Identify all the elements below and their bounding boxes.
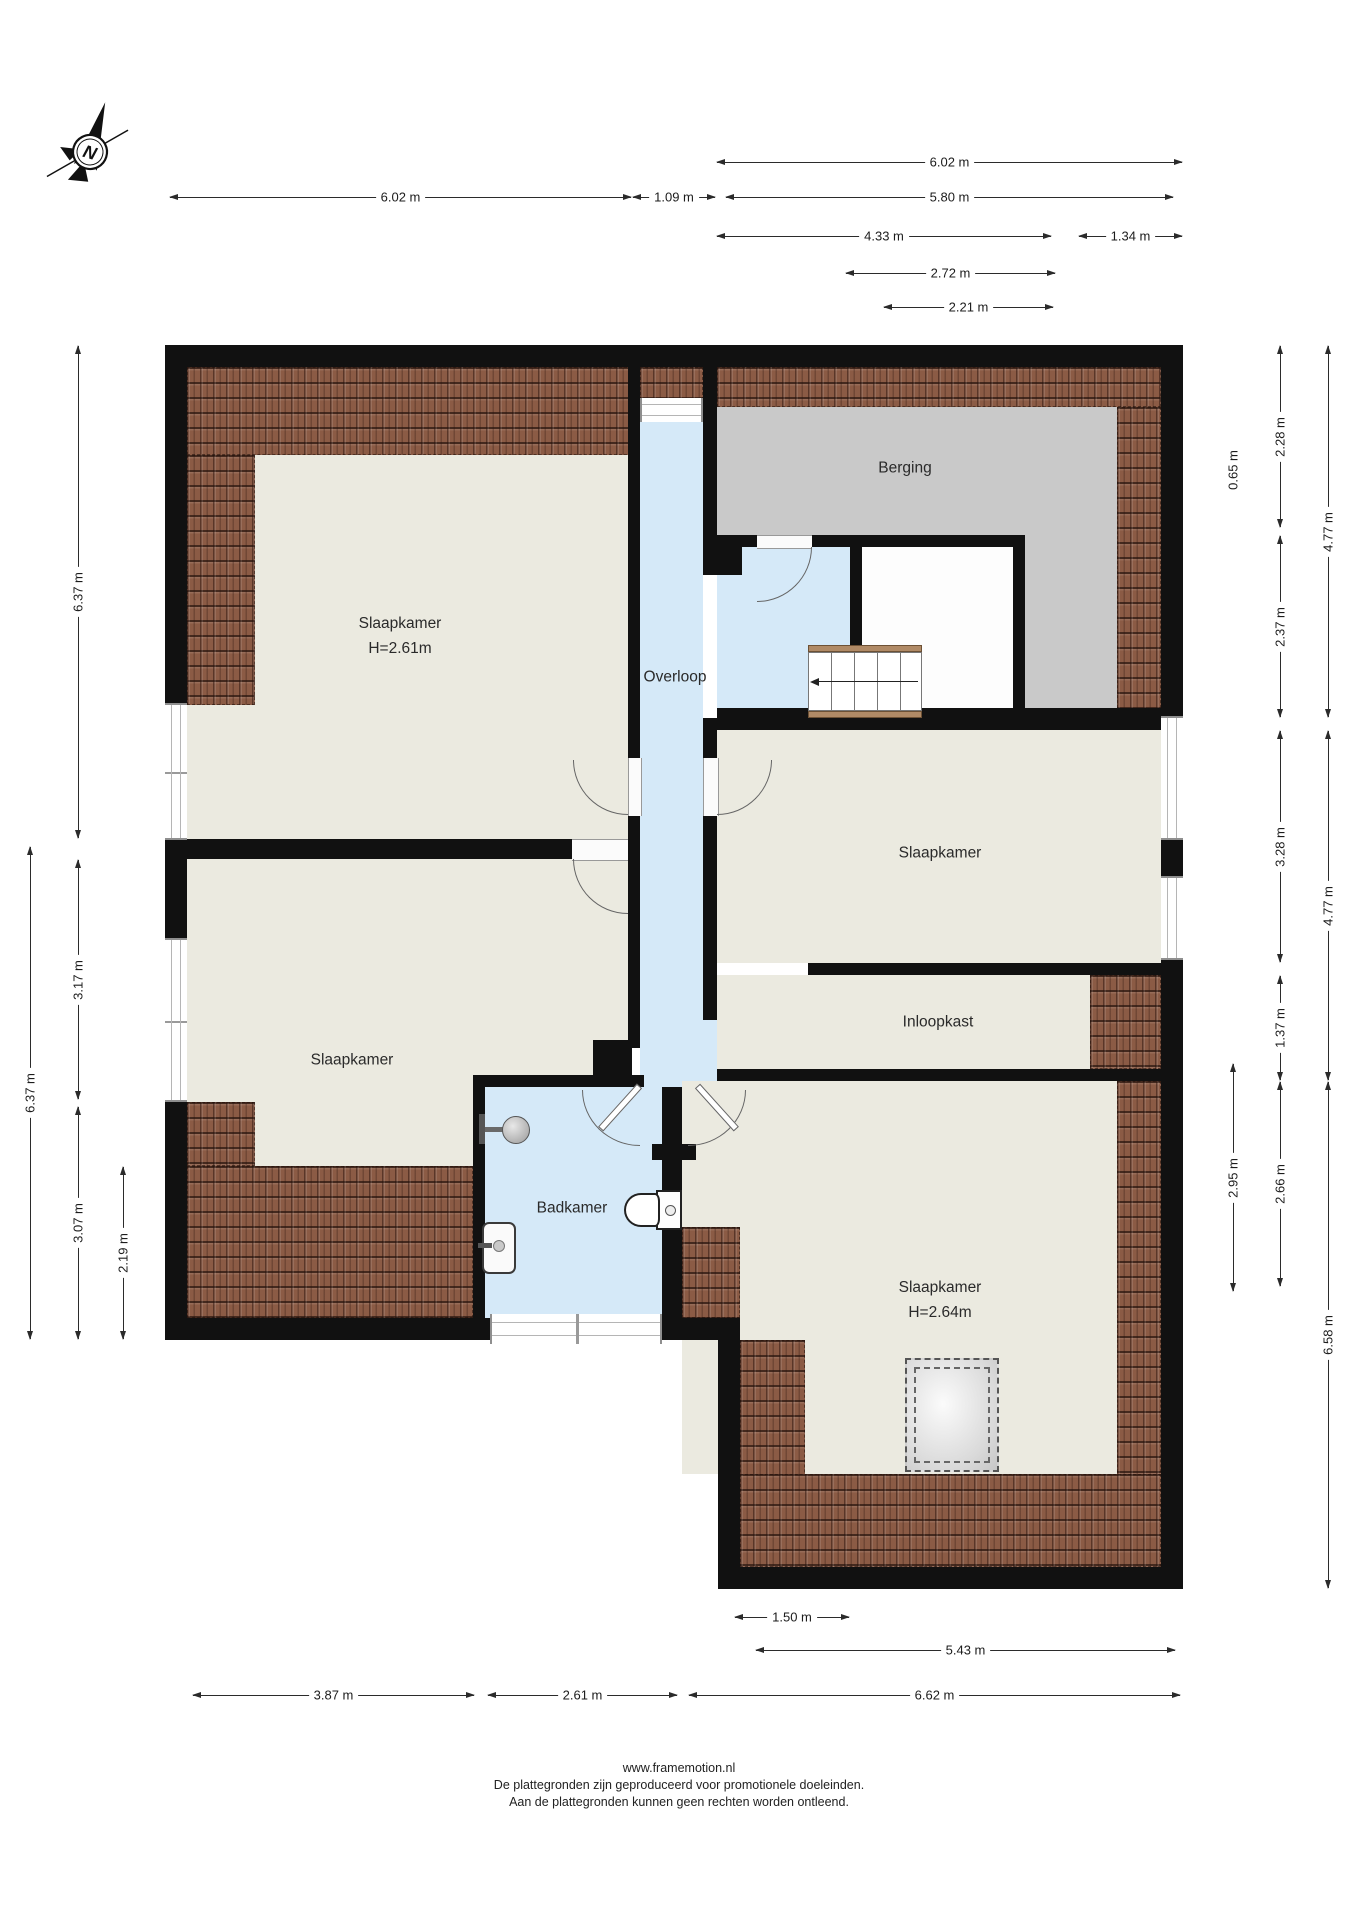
room-label-slaapkamer-topleft: SlaapkamerH=2.61m xyxy=(359,611,442,661)
north-compass-icon: N xyxy=(44,92,136,212)
floor-berging xyxy=(717,407,1161,535)
dimension-top-580: 5.80 m xyxy=(725,189,1174,205)
roof-tiles-bottomleft-band xyxy=(187,1166,473,1318)
footer-disclaimer-2: Aan de plattegronden kunnen geen rechten… xyxy=(0,1794,1358,1811)
dimension-left-637-bot: 6.37 m xyxy=(22,846,38,1340)
roof-tiles-inloopkast-right xyxy=(1090,975,1161,1069)
room-label-slaapkamer-bottomleft: Slaapkamer xyxy=(311,1048,394,1073)
wall-corridor-right-top xyxy=(703,367,717,547)
roof-tiles-berging-band xyxy=(717,367,1161,407)
skylight-dashed-void xyxy=(905,1358,999,1472)
floorplan-page: N xyxy=(0,0,1358,1920)
dimension-right-266: 2.66 m xyxy=(1272,1081,1288,1287)
dimension-bot-543: 5.43 m xyxy=(755,1642,1176,1658)
dimension-top-134: 1.34 m xyxy=(1078,228,1183,244)
dimension-right-328: 3.28 m xyxy=(1272,730,1288,963)
wall-top xyxy=(165,345,1183,367)
toilet-bowl-icon xyxy=(624,1193,660,1227)
roof-tiles-right-column-top xyxy=(1117,407,1161,718)
wall-left xyxy=(165,345,187,1340)
window-overloop-top xyxy=(640,398,703,422)
roof-tiles-bottomright-band xyxy=(740,1474,1161,1567)
dimension-right-477-bot: 4.77 m xyxy=(1320,730,1336,1081)
dimension-left-307: 3.07 m xyxy=(70,1106,86,1340)
roof-tiles-corridor-top xyxy=(640,367,703,400)
roof-tiles-bottomright-notch xyxy=(682,1227,740,1318)
wall-berging-south xyxy=(703,535,1025,547)
door-opening-bottomleft-room xyxy=(572,839,628,861)
wall-right xyxy=(1161,345,1183,1589)
dimension-left-219: 2.19 m xyxy=(115,1166,131,1340)
roof-tiles-left-column xyxy=(187,455,255,705)
room-label-slaapkamer-right: Slaapkamer xyxy=(899,841,982,866)
dimension-right-658: 6.58 m xyxy=(1320,1081,1336,1589)
room-label-berging: Berging xyxy=(878,456,931,481)
dimension-top-272: 2.72 m xyxy=(845,265,1056,281)
window-right-upper xyxy=(1161,716,1183,840)
dimension-bot-662: 6.62 m xyxy=(688,1687,1181,1703)
sink-icon xyxy=(482,1222,516,1274)
dimension-left-317: 3.17 m xyxy=(70,859,86,1100)
wall-inloopkast-south xyxy=(717,1069,1161,1081)
dimension-top-602-right: 6.02 m xyxy=(716,154,1183,170)
dimension-right-295: 2.95 m xyxy=(1225,1063,1241,1292)
wall-bottom-right xyxy=(718,1567,1183,1589)
dimension-right-228: 2.28 m xyxy=(1272,345,1288,528)
wall-stairwell-stub xyxy=(850,547,862,658)
wall-inloopkast-north xyxy=(808,963,1161,975)
footer-url: www.framemotion.nl xyxy=(0,1760,1358,1777)
footer-disclaimer-1: De plattegronden zijn geproduceerd voor … xyxy=(0,1777,1358,1794)
window-left-upper xyxy=(165,703,187,840)
window-badkamer-south xyxy=(490,1314,662,1344)
room-label-badkamer: Badkamer xyxy=(537,1196,608,1221)
wall-corridor-jog xyxy=(593,1040,632,1087)
dimension-bot-387: 3.87 m xyxy=(192,1687,475,1703)
wall-west-bottomright xyxy=(718,1340,740,1589)
door-opening-topleft-room xyxy=(628,758,642,816)
floor-overloop-corridor xyxy=(640,420,703,1020)
dimension-left-637-top: 6.37 m xyxy=(70,345,86,839)
room-label-slaapkamer-bottomright: SlaapkamerH=2.64m xyxy=(899,1275,982,1325)
wall-corridor-left xyxy=(628,367,640,1048)
stairs xyxy=(808,645,922,718)
wall-stairwell-right xyxy=(1013,535,1025,718)
dimension-right-237: 2.37 m xyxy=(1272,535,1288,718)
dimension-right-065: 0.65 m xyxy=(1225,420,1241,520)
floor-overloop-wide xyxy=(640,1020,723,1090)
dimension-right-477-top: 4.77 m xyxy=(1320,345,1336,718)
wall-funnel-tip xyxy=(652,1144,696,1160)
room-label-inloopkast: Inloopkast xyxy=(903,1010,974,1035)
wall-badkamer-west xyxy=(473,1075,485,1318)
wall-slaapkamer-right-north xyxy=(717,708,1161,730)
dimension-bot-261: 2.61 m xyxy=(487,1687,678,1703)
dimension-top-602-left: 6.02 m xyxy=(169,189,632,205)
wall-berging-chunk xyxy=(703,547,742,575)
window-left-lower xyxy=(165,938,187,1102)
floor-berging-arm xyxy=(1025,535,1117,718)
shower-head-icon xyxy=(502,1116,530,1144)
roof-tiles-topleft-band xyxy=(187,367,632,455)
roof-tiles-left-column-low xyxy=(187,1102,255,1166)
dimension-top-109: 1.09 m xyxy=(632,189,716,205)
window-right-lower xyxy=(1161,876,1183,960)
room-label-overloop: Overloop xyxy=(644,665,707,690)
dimension-top-221: 2.21 m xyxy=(883,299,1054,315)
dimension-top-433: 4.33 m xyxy=(716,228,1052,244)
stairs-direction-arrow xyxy=(810,678,819,686)
dimension-bot-150: 1.50 m xyxy=(734,1609,850,1625)
dimension-right-137: 1.37 m xyxy=(1272,975,1288,1081)
